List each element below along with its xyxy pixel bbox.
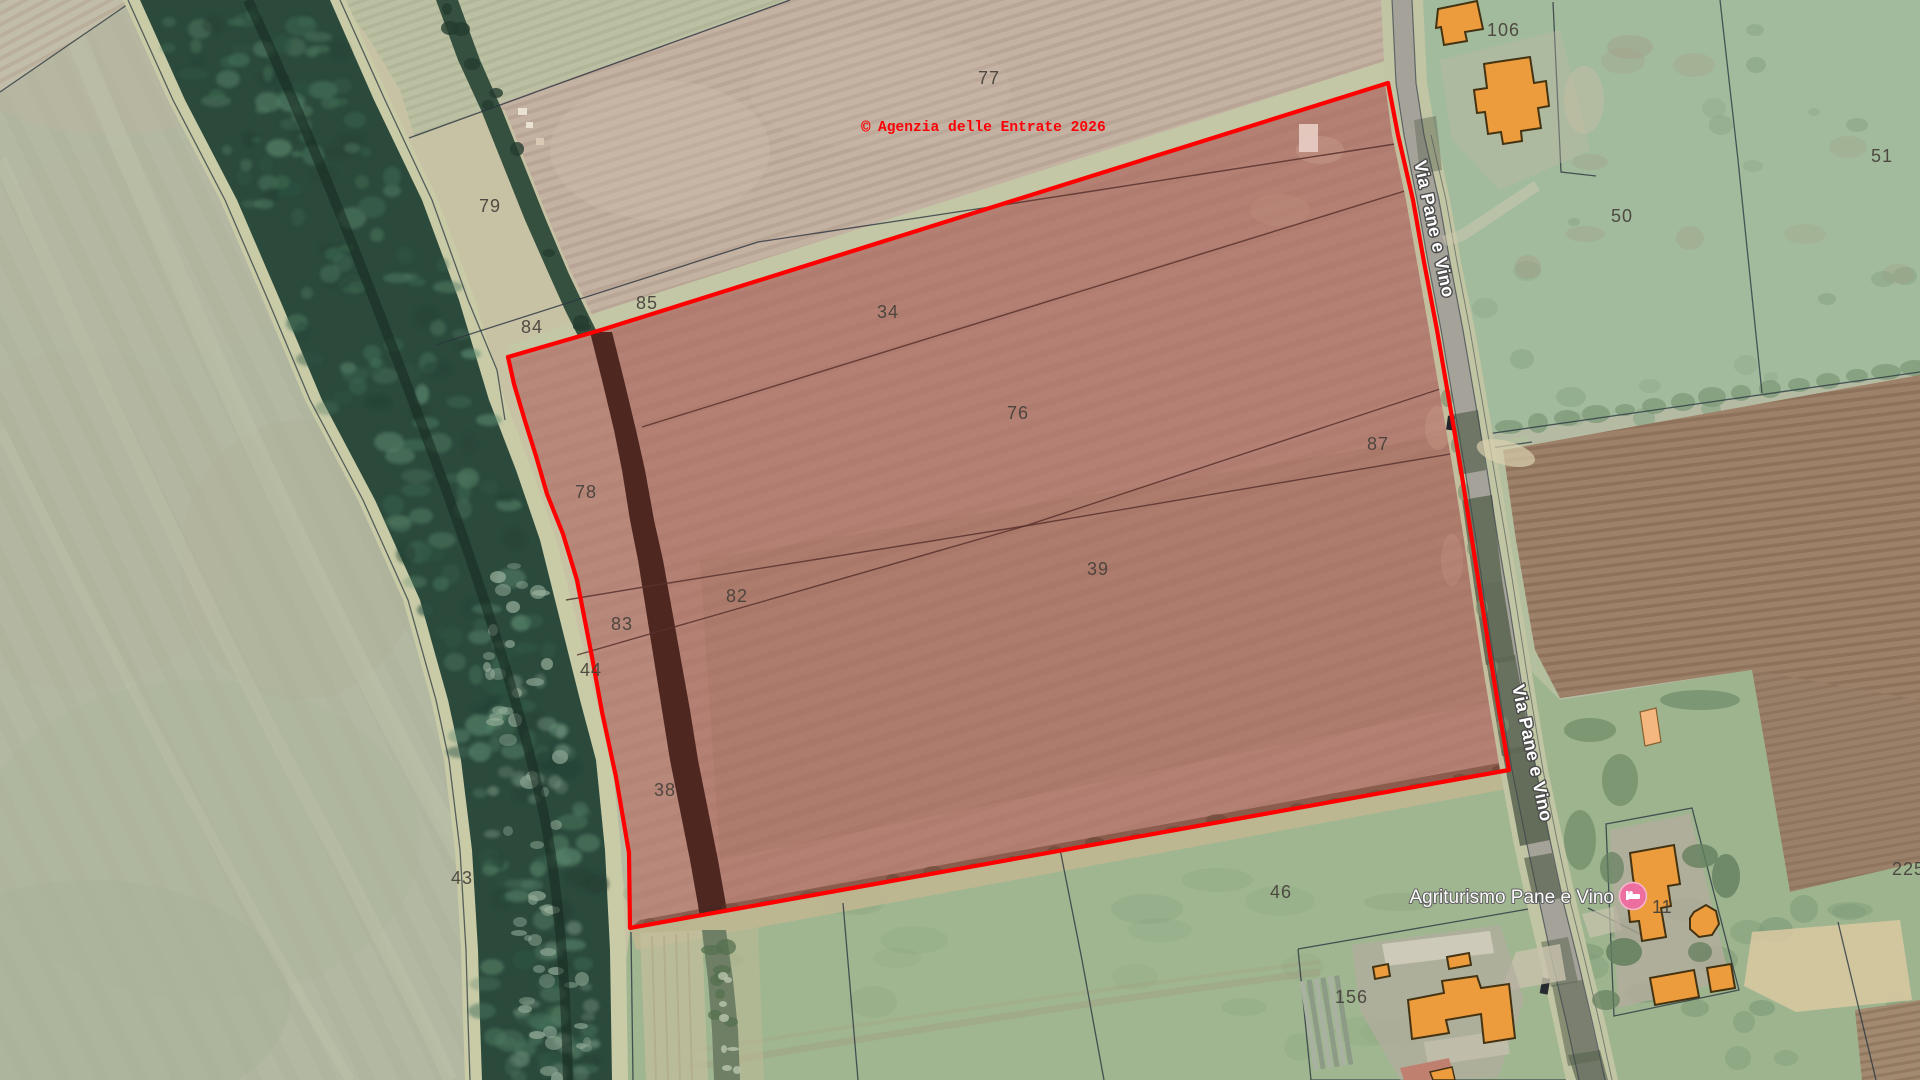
svg-text:78: 78 <box>575 482 597 502</box>
svg-text:51: 51 <box>1871 146 1893 166</box>
svg-text:85: 85 <box>636 293 658 313</box>
svg-text:©: © <box>861 119 871 137</box>
svg-text:77: 77 <box>978 68 1000 88</box>
svg-text:156: 156 <box>1335 987 1368 1007</box>
svg-text:50: 50 <box>1611 206 1633 226</box>
svg-text:43: 43 <box>451 868 473 888</box>
svg-text:38: 38 <box>654 780 676 800</box>
svg-text:76: 76 <box>1007 403 1029 423</box>
svg-text:11: 11 <box>1652 897 1673 917</box>
svg-text:44: 44 <box>580 660 602 680</box>
svg-text:79: 79 <box>479 196 501 216</box>
svg-text:39: 39 <box>1087 559 1109 579</box>
svg-text:83: 83 <box>611 614 633 634</box>
svg-text:225: 225 <box>1892 859 1920 879</box>
svg-text:Agriturismo Pane e Vino: Agriturismo Pane e Vino <box>1409 887 1614 908</box>
svg-text:106: 106 <box>1487 20 1520 40</box>
svg-text:87: 87 <box>1367 434 1389 454</box>
svg-text:Agenzia delle Entrate 2026: Agenzia delle Entrate 2026 <box>878 120 1106 136</box>
svg-text:46: 46 <box>1270 882 1292 902</box>
svg-text:34: 34 <box>877 302 899 322</box>
svg-text:82: 82 <box>726 586 748 606</box>
svg-text:84: 84 <box>521 317 543 337</box>
